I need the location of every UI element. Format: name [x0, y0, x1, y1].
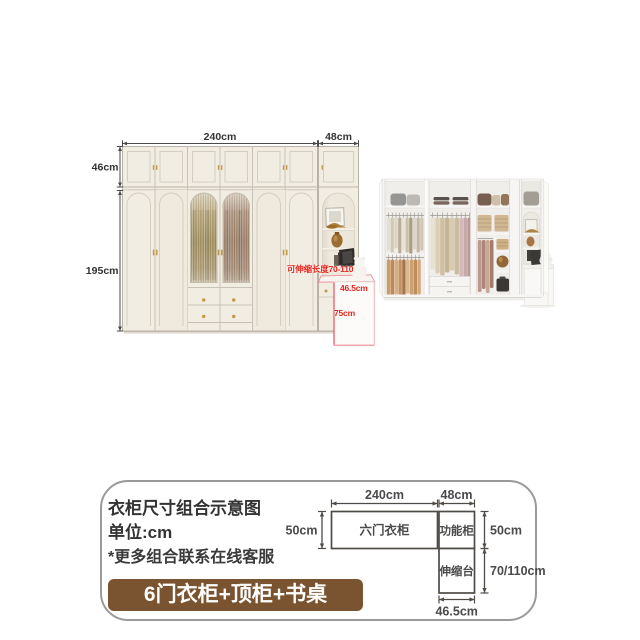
- svg-text:240cm: 240cm: [365, 488, 404, 502]
- svg-text:功能柜: 功能柜: [439, 524, 474, 538]
- svg-text:195cm: 195cm: [86, 265, 119, 277]
- svg-text:伸缩台: 伸缩台: [438, 564, 474, 578]
- svg-text:46cm: 46cm: [92, 162, 119, 174]
- svg-text:50cm: 50cm: [490, 524, 522, 538]
- svg-text:六门衣柜: 六门衣柜: [359, 523, 410, 538]
- svg-text:48cm: 48cm: [325, 131, 352, 143]
- svg-text:70/110cm: 70/110cm: [490, 564, 545, 578]
- svg-text:46.5cm: 46.5cm: [435, 605, 477, 619]
- svg-text:50cm: 50cm: [286, 524, 318, 538]
- svg-text:48cm: 48cm: [441, 488, 473, 502]
- svg-text:240cm: 240cm: [204, 131, 237, 143]
